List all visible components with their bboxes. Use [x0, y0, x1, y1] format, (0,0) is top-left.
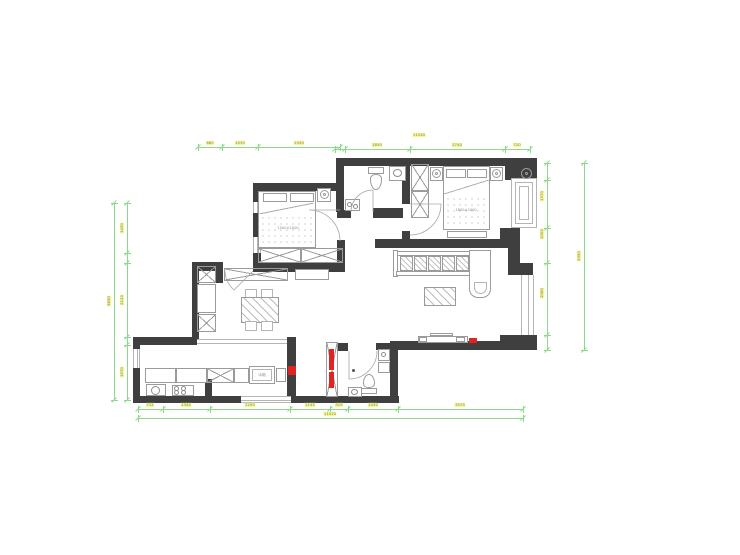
- door-swing-arcs: [0, 0, 740, 555]
- dim-label: 1145: [305, 403, 316, 407]
- floor-plan: 1500×2000 冰箱 1800×2000: [0, 0, 740, 555]
- bath2-door-swing: [349, 351, 377, 379]
- dim-label: 680: [206, 141, 214, 145]
- dim-label: 2290: [245, 403, 256, 407]
- dim-label: 5630: [107, 296, 111, 307]
- dim-label: 720: [513, 143, 521, 147]
- dim-label: 1430: [120, 223, 124, 234]
- dim-label: 11540: [412, 133, 425, 137]
- dim-label: 2060: [540, 288, 544, 299]
- dim-label: 2340: [294, 141, 305, 145]
- dim-label: 1570: [120, 367, 124, 378]
- dim-label: 3575: [455, 403, 466, 407]
- dim-label: 1000: [540, 229, 544, 240]
- dim-label: 1850: [372, 143, 383, 147]
- dim-label: 1340: [181, 403, 192, 407]
- dim-label: 1430: [368, 403, 379, 407]
- master-door-swing: [410, 204, 441, 235]
- dim-label: 11020: [323, 412, 336, 416]
- dim-label: 1030: [235, 141, 246, 145]
- dim-label: 2120: [120, 295, 124, 306]
- dim-label: 1370: [540, 191, 544, 202]
- dim-label: 515: [335, 403, 343, 407]
- entry-door-swing: [225, 271, 253, 290]
- dim-label: 2740: [452, 143, 463, 147]
- bath1-door-swing: [351, 190, 373, 212]
- dim-label: 715: [146, 403, 154, 407]
- dim-label: 5350: [577, 251, 581, 262]
- bedroom2-door-swing: [309, 210, 340, 241]
